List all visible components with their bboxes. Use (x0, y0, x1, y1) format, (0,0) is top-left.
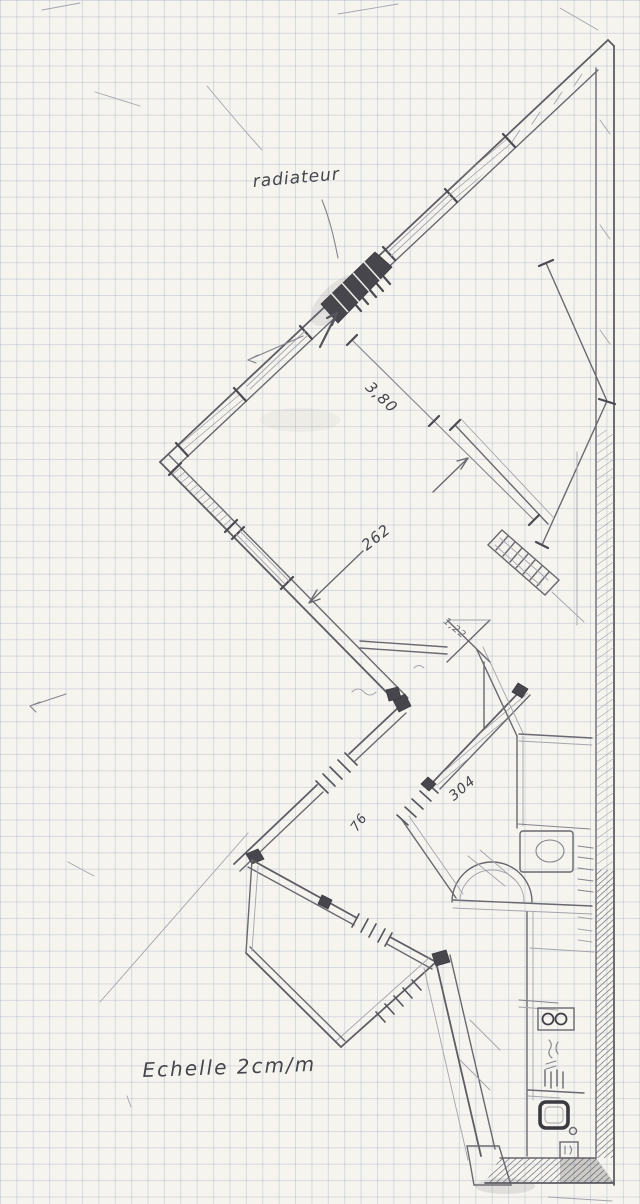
dimension-line-380 (347, 335, 539, 525)
lower-left-wall (234, 694, 411, 871)
bathroom (402, 734, 594, 952)
entry-wall-and-radiator (450, 419, 584, 625)
sink-symbol (540, 1102, 568, 1128)
stove-burner-icon (543, 1014, 554, 1025)
left-upper-wall (160, 454, 408, 706)
radiator-symbol (302, 252, 392, 335)
rotated-room (246, 860, 436, 1047)
sketch-floor-plan-page: radiateur 3,80 262 1,22 304 76 Echelle 2… (0, 0, 640, 1204)
annotation-arrows (248, 200, 468, 603)
toilet-symbol (520, 831, 573, 872)
stove-burner-icon (556, 1014, 567, 1025)
right-wall (596, 46, 614, 1185)
bottom-wall (485, 1158, 614, 1183)
